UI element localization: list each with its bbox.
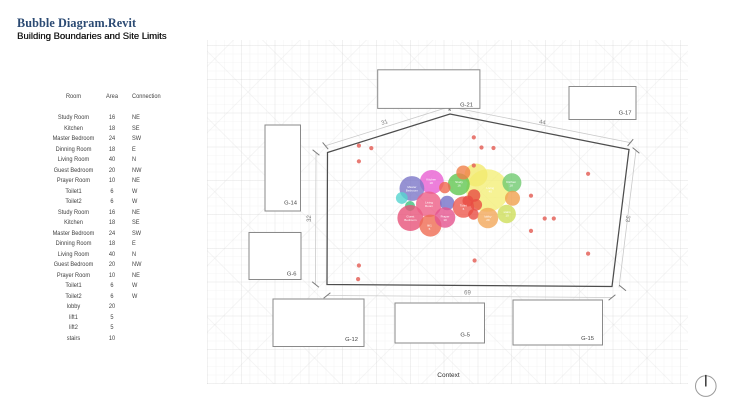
svg-text:18: 18 [430,181,434,185]
svg-text:10: 10 [505,214,509,218]
svg-text:G-12: G-12 [345,337,358,343]
svg-text:18: 18 [509,184,513,188]
svg-text:G-6: G-6 [287,272,297,278]
svg-text:G-5: G-5 [460,333,470,339]
svg-text:Context: Context [437,372,460,379]
svg-text:G-21: G-21 [460,103,473,109]
svg-text:33: 33 [624,215,631,223]
svg-text:16: 16 [457,184,461,188]
svg-text:Bedroom: Bedroom [406,189,419,193]
svg-text:Room: Room [425,204,434,208]
svg-text:10: 10 [443,218,447,222]
svg-text:40: 40 [489,190,493,194]
svg-text:G-14: G-14 [284,201,298,207]
svg-text:69: 69 [464,291,471,297]
svg-text:32: 32 [307,215,313,222]
svg-text:G-17: G-17 [619,111,632,117]
svg-text:Bedroom: Bedroom [404,218,417,222]
svg-text:20: 20 [486,218,490,222]
svg-text:G-15: G-15 [581,336,594,342]
